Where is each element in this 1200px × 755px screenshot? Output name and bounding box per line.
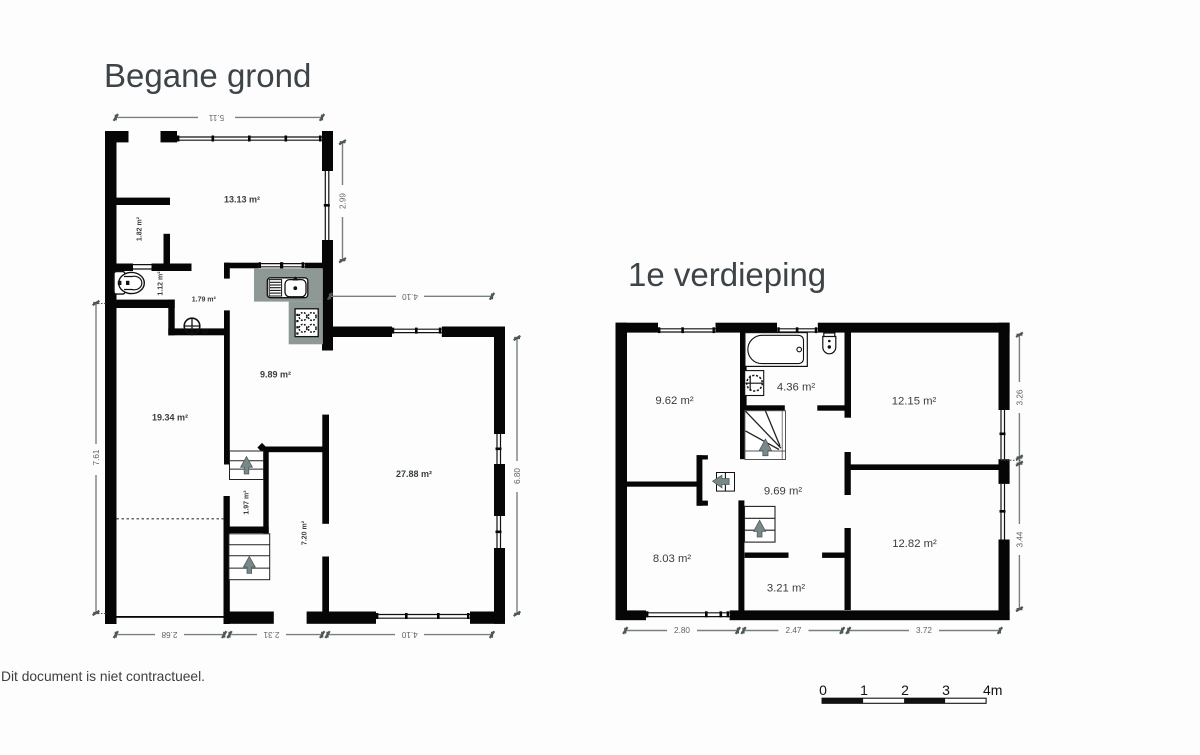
svg-text:2.47: 2.47 — [786, 626, 802, 635]
svg-text:9.62 m²: 9.62 m² — [655, 395, 694, 407]
svg-text:9.89 m²: 9.89 m² — [260, 370, 291, 380]
svg-text:1.97 m²: 1.97 m² — [244, 490, 251, 515]
svg-text:3.21 m²: 3.21 m² — [767, 583, 806, 595]
svg-text:3.26: 3.26 — [1015, 389, 1024, 405]
svg-text:8.03 m²: 8.03 m² — [653, 553, 692, 565]
svg-text:9.69 m²: 9.69 m² — [764, 486, 803, 498]
svg-text:12.15 m²: 12.15 m² — [892, 396, 937, 408]
svg-text:19.34 m²: 19.34 m² — [152, 413, 188, 423]
svg-text:6.80: 6.80 — [513, 468, 522, 484]
svg-text:2: 2 — [901, 682, 909, 698]
svg-text:27.88 m²: 27.88 m² — [396, 469, 432, 479]
svg-text:4.10: 4.10 — [401, 630, 417, 639]
svg-text:2.31: 2.31 — [263, 630, 279, 639]
svg-text:3: 3 — [942, 682, 950, 698]
svg-text:4.10: 4.10 — [402, 292, 418, 301]
svg-text:1.79 m²: 1.79 m² — [192, 297, 217, 304]
svg-text:3.72: 3.72 — [916, 626, 932, 635]
svg-text:4m: 4m — [983, 682, 1002, 698]
svg-text:7.20 m²: 7.20 m² — [302, 520, 309, 545]
svg-text:2.80: 2.80 — [674, 626, 690, 635]
svg-text:1.12 m²: 1.12 m² — [158, 271, 165, 296]
svg-text:2.68: 2.68 — [161, 630, 177, 639]
svg-text:5.11: 5.11 — [208, 113, 224, 122]
svg-text:1e verdieping: 1e verdieping — [628, 256, 826, 293]
svg-text:13.13 m²: 13.13 m² — [224, 194, 260, 204]
svg-text:Begane grond: Begane grond — [104, 57, 311, 94]
svg-text:1.82 m²: 1.82 m² — [137, 216, 144, 241]
svg-text:2.99: 2.99 — [339, 193, 348, 209]
svg-text:Dit document is niet contractu: Dit document is niet contractueel. — [1, 669, 205, 684]
svg-text:1: 1 — [860, 682, 868, 698]
svg-text:4.36 m²: 4.36 m² — [777, 382, 816, 394]
svg-text:3.44: 3.44 — [1015, 531, 1024, 547]
svg-text:0: 0 — [819, 682, 827, 698]
svg-text:7.61: 7.61 — [92, 449, 101, 465]
svg-text:12.82 m²: 12.82 m² — [892, 538, 937, 550]
